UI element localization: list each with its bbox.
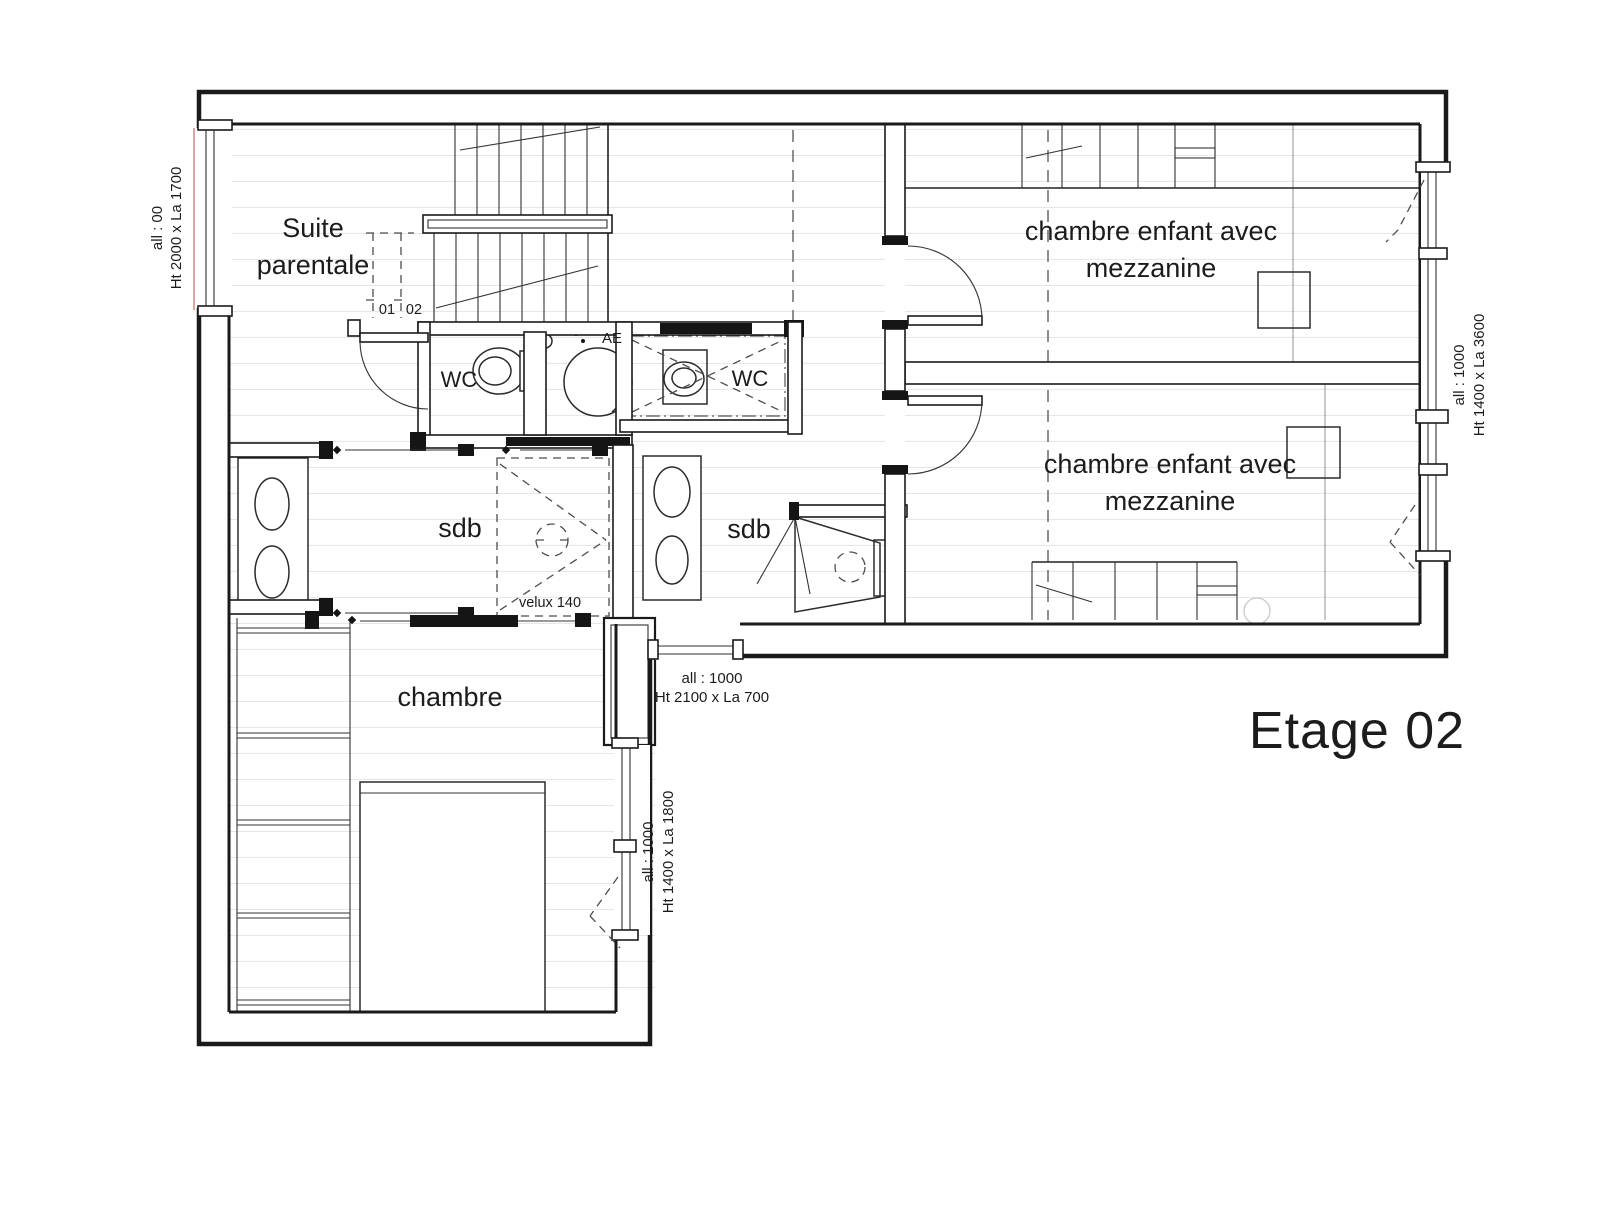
sliding-door-sdb-left-top[interactable] [458,444,474,456]
window-left-sill-label: all : 00 [149,206,166,250]
label-room1-line2: mezzanine [1086,253,1217,283]
label-suite-line2: parentale [257,250,370,280]
page-title: Etage 02 [1249,702,1465,760]
floor-plan-drawing: 01 02 [0,0,1600,1222]
pocket-door-chambre[interactable] [410,615,518,627]
wall-children-wing-c [885,474,905,624]
window-left-size-label: Ht 2000 x La 1700 [168,167,185,290]
floor-plan-page: 01 02 [0,0,1600,1222]
label-room1-line1: chambre enfant avec [1025,216,1277,246]
label-ae: AE [602,330,622,347]
label-wc-left: WC [441,367,478,392]
label-sdb-right: sdb [727,514,771,544]
pocket-door-wc-left[interactable] [506,437,630,446]
wall-between-sdb [613,445,633,624]
vanity-right [643,456,701,600]
window-right-size-label: Ht 1400 x La 3600 [1471,314,1488,437]
duct-label-02: 02 [406,302,422,318]
window-corridor-sill-label: all : 1000 [682,670,743,687]
wall-children-wing-a [885,124,905,236]
wall-sdb-left-stub-top [229,443,321,457]
window-right-sill-label: all : 1000 [1451,345,1468,406]
label-suite-line1: Suite [282,213,344,243]
label-room2-line1: chambre enfant avec [1044,449,1296,479]
label-room2-line2: mezzanine [1105,486,1236,516]
vanity-left [238,458,308,612]
chimney-pillar [604,618,655,745]
wall-children-wing-b [885,329,905,391]
window-chambre-size-label: Ht 1400 x La 1800 [660,791,677,914]
window-corridor: all : 1000 Ht 2100 x La 700 [648,640,769,706]
pocket-door-wc-right[interactable] [660,323,752,334]
wall-between-children-rooms [905,362,1420,384]
label-velux: velux 140 [519,595,581,611]
window-corridor-size-label: Ht 2100 x La 700 [655,689,769,706]
wall-sdb-right-top [620,420,796,432]
label-chambre: chambre [397,682,502,712]
duct-label-01: 01 [379,302,395,318]
wall-wc-right-right [788,322,802,434]
label-sdb-left: sdb [438,513,482,543]
bed-chambre [360,782,545,1012]
window-left: all : 00 Ht 2000 x La 1700 [149,120,232,316]
column-closet-wc [524,332,546,435]
window-chambre-sill-label: all : 1000 [640,822,657,883]
stair-handrail [423,215,612,233]
label-wc-right: WC [732,366,769,391]
